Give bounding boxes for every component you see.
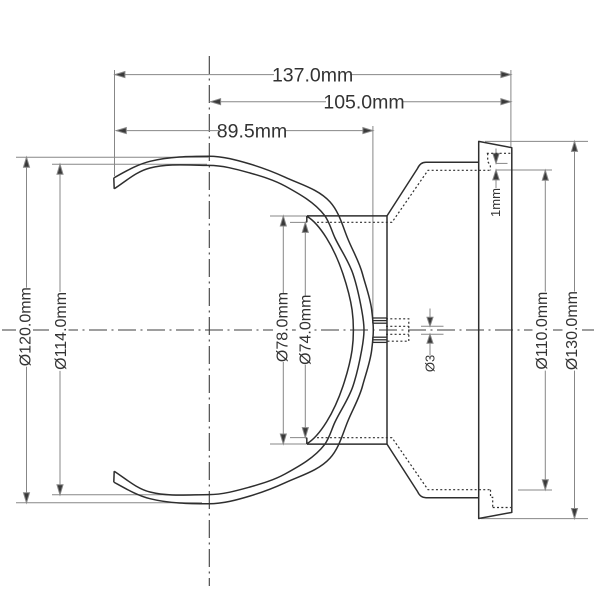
svg-text:1mm: 1mm bbox=[488, 188, 503, 217]
svg-text:Ø3: Ø3 bbox=[423, 355, 438, 372]
svg-text:105.0mm: 105.0mm bbox=[323, 92, 404, 114]
svg-text:137.0mm: 137.0mm bbox=[272, 64, 353, 86]
svg-text:Ø120.0mm: Ø120.0mm bbox=[18, 287, 35, 366]
svg-text:Ø74.0mm: Ø74.0mm bbox=[297, 295, 314, 365]
svg-text:Ø130.0mm: Ø130.0mm bbox=[564, 291, 581, 370]
svg-text:Ø78.0mm: Ø78.0mm bbox=[275, 292, 292, 362]
svg-text:Ø110.0mm: Ø110.0mm bbox=[534, 292, 551, 370]
svg-text:89.5mm: 89.5mm bbox=[217, 120, 287, 142]
svg-text:Ø114.0mm: Ø114.0mm bbox=[53, 292, 70, 370]
